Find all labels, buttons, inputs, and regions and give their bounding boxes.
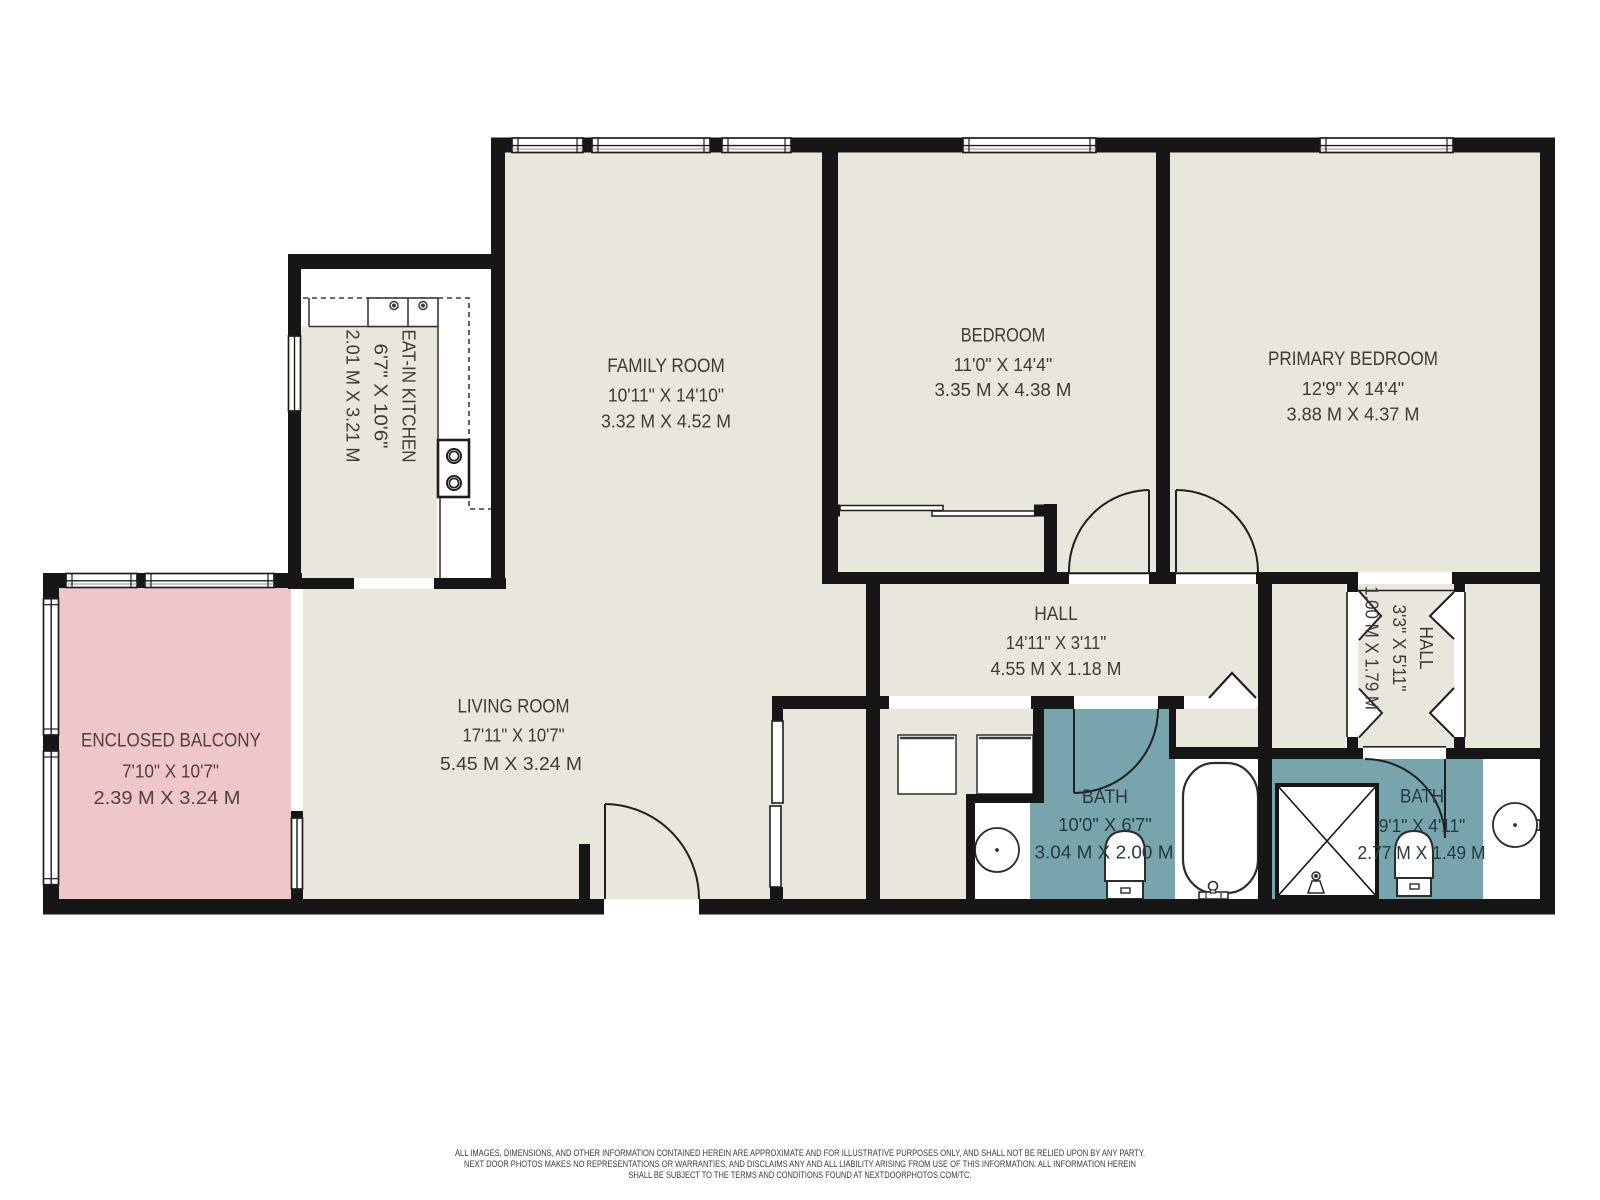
svg-text:1.00 M X 1.79 M: 1.00 M X 1.79 M [1362,586,1382,710]
svg-text:ENCLOSED BALCONY: ENCLOSED BALCONY [81,730,261,752]
svg-text:3'3" X 5'11": 3'3" X 5'11" [1389,605,1409,692]
svg-text:3.32 M X 4.52 M: 3.32 M X 4.52 M [601,412,731,432]
svg-text:LIVING ROOM: LIVING ROOM [458,696,570,718]
svg-text:14'11" X 3'11": 14'11" X 3'11" [1006,633,1107,653]
svg-text:BEDROOM: BEDROOM [961,325,1046,347]
svg-text:3.04 M X 2.00 M: 3.04 M X 2.00 M [1035,843,1174,863]
svg-text:10'11" X 14'10": 10'11" X 14'10" [608,386,724,406]
svg-text:5.45 M X 3.24 M: 5.45 M X 3.24 M [440,754,582,774]
svg-text:ALL IMAGES, DIMENSIONS, AND OT: ALL IMAGES, DIMENSIONS, AND OTHER INFORM… [455,1147,1145,1158]
svg-text:3.88 M X 4.37 M: 3.88 M X 4.37 M [1287,405,1420,425]
svg-text:6'7" X 10'6": 6'7" X 10'6" [371,344,391,449]
svg-text:7'10" X 10'7": 7'10" X 10'7" [122,762,219,782]
svg-text:9'1" X 4'11": 9'1" X 4'11" [1379,816,1466,836]
svg-text:10'0" X 6'7": 10'0" X 6'7" [1058,815,1152,835]
svg-text:2.01 M X 3.21 M: 2.01 M X 3.21 M [343,330,363,463]
svg-text:2.39 M X 3.24 M: 2.39 M X 3.24 M [94,788,241,808]
svg-text:11'0" X 14'4": 11'0" X 14'4" [954,355,1053,375]
svg-text:NEXT DOOR PHOTOS MAKES NO REPR: NEXT DOOR PHOTOS MAKES NO REPRESENTATION… [464,1158,1136,1169]
svg-text:HALL: HALL [1416,627,1436,670]
svg-text:3.35 M X 4.38 M: 3.35 M X 4.38 M [935,380,1072,400]
svg-text:PRIMARY BEDROOM: PRIMARY BEDROOM [1268,348,1438,370]
svg-text:BATH: BATH [1400,786,1444,808]
svg-text:HALL: HALL [1034,603,1078,625]
svg-text:BATH: BATH [1082,786,1128,808]
svg-text:17'11" X 10'7": 17'11" X 10'7" [463,726,565,746]
svg-text:2.77 M X 1.49 M: 2.77 M X 1.49 M [1358,843,1486,863]
svg-text:FAMILY ROOM: FAMILY ROOM [607,355,725,377]
svg-text:SHALL BE SUBJECT TO THE TERMS: SHALL BE SUBJECT TO THE TERMS AND CONDIT… [629,1169,972,1180]
svg-text:EAT-IN KITCHEN: EAT-IN KITCHEN [399,330,419,463]
svg-text:12'9" X 14'4": 12'9" X 14'4" [1302,379,1405,399]
svg-text:4.55 M X 1.18 M: 4.55 M X 1.18 M [991,659,1122,679]
